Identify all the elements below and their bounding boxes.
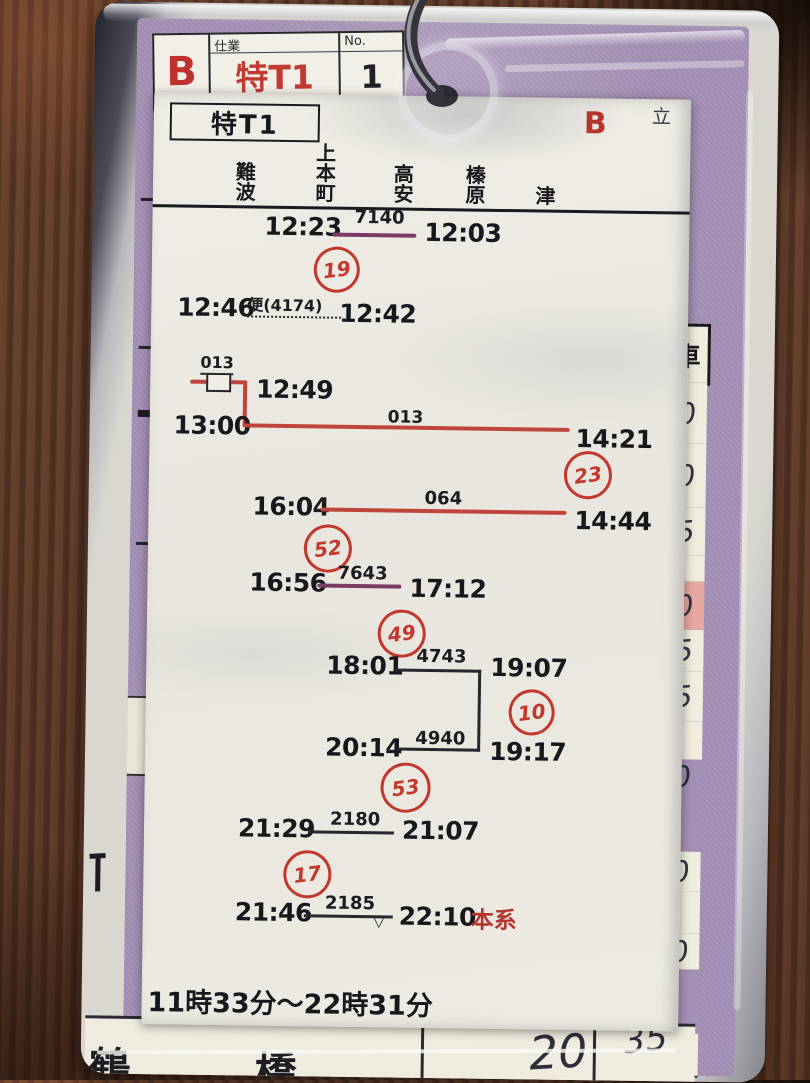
crew-circle-badge: 23 (561, 448, 615, 502)
departure-time: 20:14 (325, 733, 402, 763)
departure-time: 21:07 (402, 816, 479, 846)
paper-corner-mark: 立 (652, 102, 671, 129)
departure-time: 13:00 (173, 410, 250, 440)
cell-divider (420, 1023, 423, 1081)
terminal-triangle-marker: ▽ (373, 911, 386, 930)
departure-time: 14:44 (574, 506, 651, 536)
system-note: 本系 (471, 901, 517, 936)
arrival-time: 22:10 (399, 902, 476, 932)
station-name: 津 (533, 185, 554, 205)
train-number: 4743 (416, 646, 466, 668)
bottom-station-kanji: 鶴 (88, 1034, 131, 1082)
assignment-label: 仕業 (210, 33, 338, 54)
arrival-time: 16:04 (252, 492, 329, 522)
station-name: 上本町 (313, 142, 335, 202)
brake-van-box (206, 373, 231, 392)
duty-title: 特T1 (211, 103, 279, 141)
line-4743 (395, 669, 481, 673)
departure-time: 21:46 (235, 897, 312, 927)
plastic-card-sleeve: 車 0 0 5 0 5 5 0 0 0 5 鶴 橋 20 35 B 仕業 特T1… (81, 1, 780, 1082)
grade-letter: B (166, 49, 197, 95)
line-2180 (308, 830, 394, 834)
train-number: 4940 (415, 728, 465, 750)
station-name: 榛原 (463, 164, 485, 204)
line-7643 (317, 583, 401, 588)
deadhead-train-number: 便(4174) (247, 295, 322, 315)
crew-circle-badge: 19 (311, 244, 362, 295)
arrival-time: 12:46 (177, 292, 254, 322)
binder-ring-icon (378, 0, 498, 124)
handwritten-value: 20 (527, 1023, 588, 1080)
crew-number: 53 (390, 774, 421, 801)
train-number: 064 (424, 488, 462, 510)
crew-number: 52 (313, 535, 344, 562)
crew-number: 10 (516, 699, 547, 726)
crew-number: 49 (386, 620, 417, 647)
arrival-time: 19:07 (490, 653, 567, 683)
intermediate-time: 12:49 (256, 375, 333, 405)
schedule-paper: 特T1 B 立 難波 上本町 高安 榛原 津 12:23 7140 12:03 … (141, 92, 691, 1031)
arrival-time: 14:21 (575, 424, 652, 454)
cell-divider (592, 1025, 595, 1082)
layover-connector (477, 670, 481, 752)
arrival-time: 21:29 (238, 813, 315, 843)
departure-time: 12:42 (339, 299, 416, 329)
station-name: 難波 (233, 161, 255, 201)
train-number: 2185 (325, 893, 375, 915)
departure-time: 18:01 (326, 651, 403, 681)
arrival-time: 17:12 (409, 574, 486, 604)
station-header-band: 難波 上本町 高安 榛原 津 (153, 136, 691, 214)
bottom-station-kanji: 橋 (254, 1039, 297, 1083)
line-7140 (332, 233, 416, 238)
clipped-kanji-stroke (95, 857, 100, 891)
duty-time-span: 11時33分～22時31分 (147, 980, 433, 1023)
train-number: 013 (388, 407, 424, 427)
crew-circle-badge: 10 (506, 687, 557, 738)
train-number: 2180 (330, 809, 380, 831)
train-number: 7140 (354, 207, 404, 229)
departure-time: 12:03 (424, 218, 501, 248)
paper-grade-letter: B (584, 106, 607, 141)
crew-number: 17 (292, 861, 323, 888)
arrival-time: 19:17 (489, 737, 566, 767)
crew-circle-badge: 53 (378, 760, 434, 816)
crew-number: 23 (573, 462, 604, 489)
train-number: 7643 (337, 563, 387, 585)
station-name: 高安 (391, 163, 413, 203)
departure-time: 16:56 (249, 567, 326, 597)
arrival-time: 12:23 (264, 212, 341, 242)
deadhead-dotted-line: 便(4174) (247, 291, 341, 318)
crew-number: 19 (321, 256, 352, 283)
